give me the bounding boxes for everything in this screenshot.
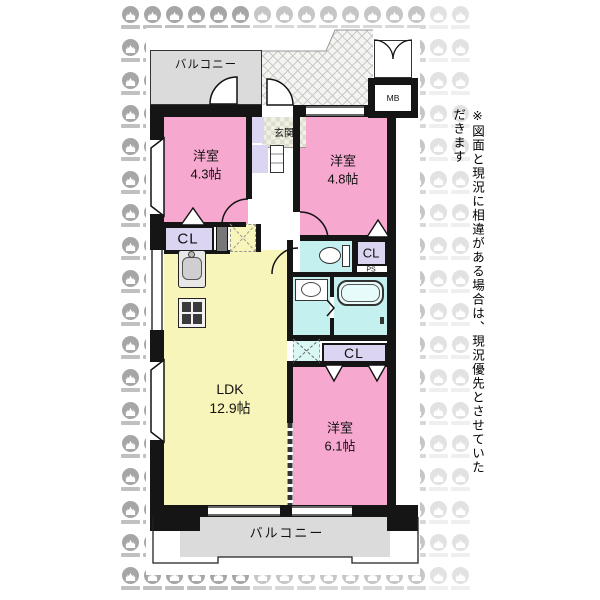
closet-2-label: CL xyxy=(363,246,380,261)
mb-door-box xyxy=(374,40,412,78)
pipe-shaft-box xyxy=(216,226,228,252)
wall xyxy=(287,367,293,423)
wall xyxy=(150,105,164,140)
room-name: 洋室 xyxy=(324,419,355,437)
entrance-label: 玄関 xyxy=(274,125,294,140)
wall xyxy=(150,330,164,362)
balcony-top-label: バルコニー xyxy=(175,56,237,72)
room-size: 6.1帖 xyxy=(324,437,355,455)
wall xyxy=(287,361,387,367)
floorplan-image: バルコニー MB xyxy=(0,0,600,600)
pipe-space-label: PS xyxy=(366,267,375,274)
disclaimer-note: ※図面と現況に相違がある場合は、現況優先とさせていただきます xyxy=(449,108,487,488)
room-name: 洋室 xyxy=(327,152,358,170)
meter-box-label: MB xyxy=(387,93,400,103)
window xyxy=(292,506,352,516)
room-name: 洋室 xyxy=(190,147,221,165)
window xyxy=(151,250,163,330)
wall xyxy=(293,107,300,212)
wall xyxy=(287,335,387,341)
window xyxy=(306,106,364,116)
hall-strip xyxy=(252,117,264,143)
kitchen-sink-basin xyxy=(182,257,202,280)
hall-strip xyxy=(252,145,268,173)
closet-1-label: CL xyxy=(177,231,198,248)
storage-space xyxy=(230,224,256,252)
wall xyxy=(150,505,200,531)
room-size: 4.3帖 xyxy=(190,165,221,183)
room-name: LDK xyxy=(209,380,250,399)
room-ldk xyxy=(164,250,287,505)
wall xyxy=(150,214,164,250)
toilet-bowl xyxy=(319,247,341,264)
wall xyxy=(352,240,357,272)
room-label-ldk: LDK 12.9帖 xyxy=(209,380,250,418)
kitchen-faucet xyxy=(188,251,195,258)
wall xyxy=(330,277,334,297)
stove-burner xyxy=(193,302,202,312)
room-size: 12.9帖 xyxy=(209,399,250,418)
wall xyxy=(164,222,246,227)
stove-burner xyxy=(182,302,191,312)
stove-burner xyxy=(182,314,191,324)
wall xyxy=(387,105,396,517)
washer-pan xyxy=(293,339,320,363)
vanity-basin xyxy=(301,282,321,297)
wall xyxy=(300,235,387,241)
shoe-cabinet xyxy=(270,145,284,173)
room-label-bedroom-4-8: 洋室 4.8帖 xyxy=(327,152,358,187)
toilet-tank xyxy=(342,245,350,267)
wall xyxy=(256,224,261,252)
stove-burner xyxy=(193,314,202,324)
closet-3-label: CL xyxy=(344,345,364,361)
wall xyxy=(246,107,252,199)
wall xyxy=(287,240,293,340)
shower-faucet xyxy=(380,317,384,324)
room-label-bedroom-6-1: 洋室 6.1帖 xyxy=(324,419,355,454)
room-size: 4.8帖 xyxy=(327,170,358,188)
balcony-bottom-label: バルコニー xyxy=(250,523,325,542)
window xyxy=(208,506,280,516)
wall xyxy=(387,505,418,531)
room-label-bedroom-4-3: 洋室 4.3帖 xyxy=(190,147,221,182)
bathtub-inner xyxy=(341,284,380,302)
